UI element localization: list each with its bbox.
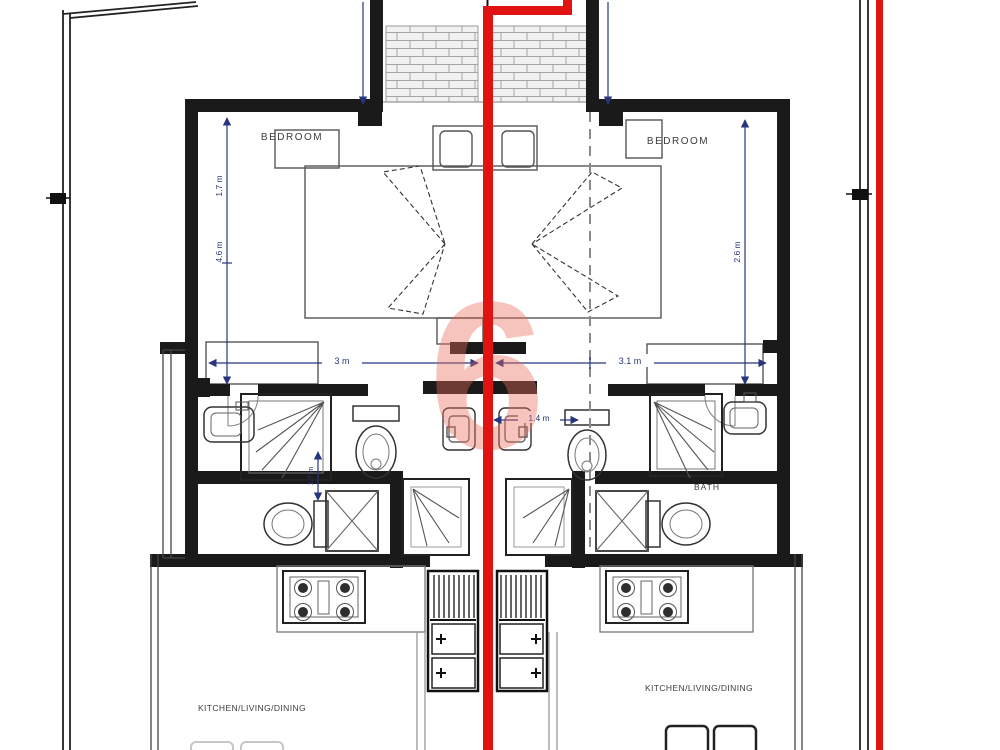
floor-plan-canvas: 3 m 3.1 m 1.4 m 1.7 m 4.6 m 2.6 m 1.7 m … [0,0,1000,750]
washing-machine-left [326,491,378,551]
boundary-topleft-diagonal [63,2,198,18]
chair-left-2 [241,742,283,750]
dim-left-depth-lower-label: 4.6 m [214,241,224,262]
top-wall-right-unit [599,99,790,112]
outer-wall-left [185,99,198,562]
chair-right-1 [666,726,708,750]
dim-left-width-label: 3 m [334,356,349,366]
boundary-right [860,0,868,750]
living-wall-left [151,554,158,750]
sink-right [724,393,766,434]
kitchen-wall-left [150,554,430,567]
sink-left [204,402,254,442]
kitchen-wall-right [545,554,803,567]
shower-right [650,394,722,478]
wc-toilet-left [264,501,328,547]
pillow-left [440,131,472,167]
toilet-left-bath [353,406,399,478]
survey-markers [46,189,872,204]
living-wall-right [795,554,802,750]
hob-left [283,571,365,623]
floor-plan-drawing: 3 m 3.1 m 1.4 m 1.7 m 4.6 m 2.6 m 1.7 m … [0,0,1000,750]
dim-left-depth-upper-label: 1.7 m [214,175,224,196]
room-label-living-right: KITCHEN/LIVING/DINING [645,683,753,693]
kitchens [277,566,753,750]
shaft-wall-right [586,0,599,112]
room-label-bath-right: BATH [694,482,720,492]
room-label-bedroom-right: BEDROOM [647,136,709,147]
lightwell-wall-left [163,350,185,558]
fridge-left [428,571,478,691]
bath-wall-left-a [198,384,230,396]
fridge-right [497,571,547,691]
chair-right-2 [714,726,756,750]
washing-machine-right [596,491,648,551]
chairs [191,726,756,750]
dim-right-depth-label: 2.6 m [732,241,742,262]
pillow-right [502,131,534,167]
room-label-living-left: KITCHEN/LIVING/DINING [198,703,306,713]
shaft-wall-left [370,0,383,112]
room-label-bedroom-left: BEDROOM [261,132,323,143]
top-wall-left-unit [185,99,370,112]
chair-left-1 [191,742,233,750]
dim-bath-left-label: 1.7 m [306,467,315,486]
hob-right [606,571,688,623]
wc-wall-right [595,471,790,484]
dim-right-width-label: 3.1 m [619,356,642,366]
outer-wall-right [777,99,790,562]
red-boundary-line [876,0,883,750]
wc-toilet-right [646,501,710,547]
boundary-left [63,10,70,750]
